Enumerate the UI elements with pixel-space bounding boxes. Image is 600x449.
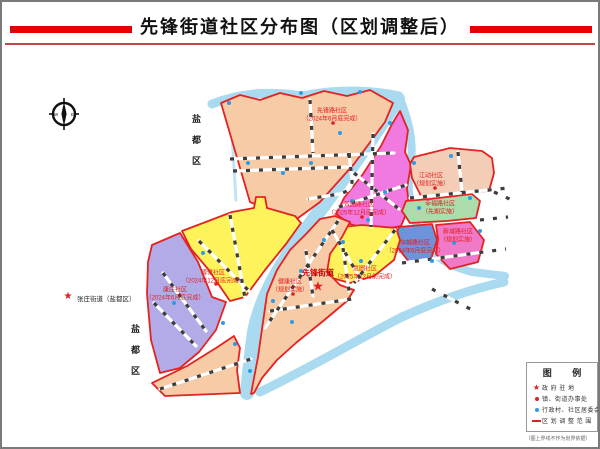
label-jiankang: 健康社区（规划实施） bbox=[272, 280, 308, 295]
compass-east-label: E bbox=[71, 112, 74, 117]
label-boya: 博雅社区（2024年12月底完成） bbox=[182, 271, 244, 286]
label-xianfeng-lu: 先锋路社区（2024年6月底完成） bbox=[303, 109, 362, 124]
legend-item-government-seat: ★ 政 府 驻 地 bbox=[531, 382, 593, 393]
neighbor-street-star: ★ bbox=[64, 292, 73, 302]
label-jiangdong: 江动社区（规划实施） bbox=[413, 174, 449, 189]
label-xingfu-lu: 幸福路社区（先期实施） bbox=[422, 202, 458, 217]
legend-red-line-icon bbox=[532, 420, 541, 422]
legend-blue-dot-icon bbox=[535, 408, 539, 412]
neighbor-street-label: 张庄街道（盐都区） bbox=[77, 293, 136, 303]
legend-title: 图 例 bbox=[531, 366, 593, 379]
label-siyuan: 思圆社区（2025年12月前完成） bbox=[334, 267, 396, 282]
map-sheet: 先锋街道社区分布图（区划调整后） bbox=[0, 0, 600, 449]
label-shuangyuan-lu: 双园路社区（2025年12月底完成） bbox=[328, 203, 390, 218]
district-label-yandu-top: 盐都区 bbox=[190, 114, 203, 177]
legend-star-icon: ★ bbox=[533, 384, 540, 392]
district-label-yandu-bottom: 盐都区 bbox=[129, 324, 142, 387]
label-dongcheng-lu: 东城路社区（2024年6月底完成） bbox=[386, 241, 445, 256]
government-seat-star: ★ bbox=[312, 280, 324, 293]
street-name-label: 先锋街道 bbox=[302, 268, 334, 279]
legend-caption: （图上界线不作为划界依据） bbox=[508, 435, 600, 442]
label-xincheng-lu: 新城路社区（规划实施） bbox=[440, 230, 476, 245]
map-canvas bbox=[2, 2, 600, 449]
legend-red-dot-icon bbox=[535, 397, 539, 401]
label-kangzhuang: 康庄社区（2024年6月底完成） bbox=[146, 288, 205, 303]
compass-rose: W E bbox=[46, 96, 82, 134]
legend-item-street-office: 镇、街道办事处 bbox=[531, 393, 593, 404]
legend-item-village-committee: 行政村、社区居委会 bbox=[531, 404, 593, 415]
legend-item-adjustment-scope: 区 划 调 整 范 围 bbox=[531, 415, 593, 426]
legend-box: 图 例 ★ 政 府 驻 地 镇、街道办事处 行政村、社区居委会 区 划 调 整 … bbox=[526, 362, 598, 432]
